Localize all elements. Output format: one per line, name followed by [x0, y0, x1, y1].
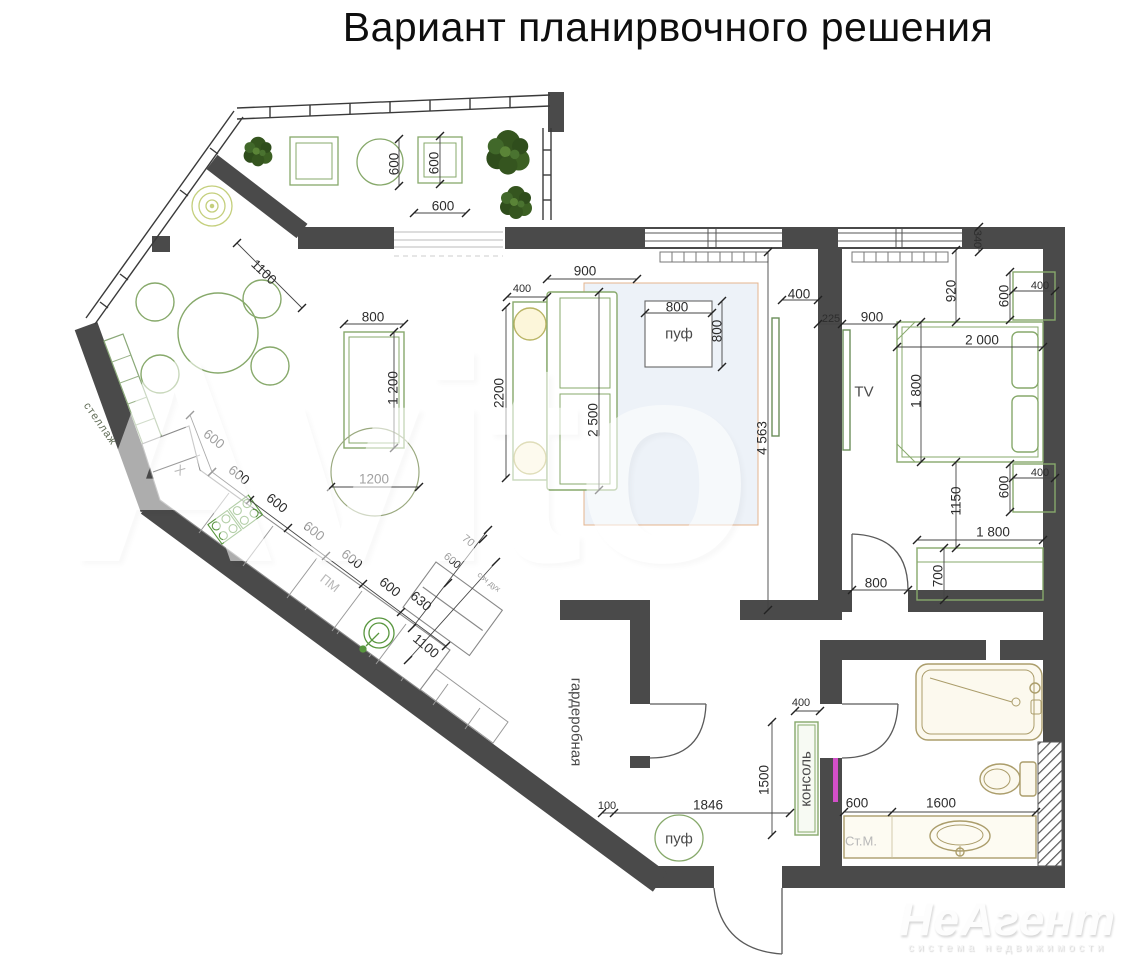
pouf-hall [655, 815, 703, 861]
wardrobe-door [650, 704, 706, 758]
balcony-furniture [290, 137, 462, 185]
kitchen-counter [142, 426, 450, 690]
dining-table [178, 293, 258, 373]
plants [244, 130, 532, 219]
windows [394, 229, 962, 262]
balcony-glazing [86, 95, 551, 324]
vent-shaft [1038, 742, 1062, 866]
ceiling-lamp [192, 186, 232, 226]
hallway [655, 722, 838, 861]
vanity-counter [844, 816, 1036, 858]
bedroom [843, 272, 1055, 600]
bed [897, 322, 1043, 462]
entry-door [714, 888, 782, 954]
bathtub [916, 664, 1042, 740]
mirror [833, 758, 838, 802]
kitchen [142, 426, 502, 690]
armchair [290, 137, 338, 185]
floor-plan-page: Вариант планирвочного решения [0, 0, 1144, 960]
chair [136, 283, 174, 321]
toilet [980, 762, 1036, 796]
bathroom [844, 664, 1062, 866]
bedroom-door [852, 534, 908, 590]
cabinet [344, 332, 404, 448]
balcony-table [357, 139, 403, 185]
pouf [645, 301, 712, 367]
tv-bedroom [843, 330, 850, 450]
bathroom-door [842, 704, 898, 758]
floor-plan [0, 0, 1144, 960]
living-room [513, 283, 779, 525]
doors [650, 534, 908, 954]
plant [486, 130, 529, 175]
chair [141, 355, 179, 393]
chair [243, 280, 281, 318]
sofa [513, 292, 617, 490]
balcony-door-threshold [394, 232, 503, 256]
plant [500, 186, 532, 219]
tv-living [772, 318, 779, 436]
plant [244, 137, 273, 167]
round-table [331, 428, 419, 516]
chair [251, 347, 289, 385]
